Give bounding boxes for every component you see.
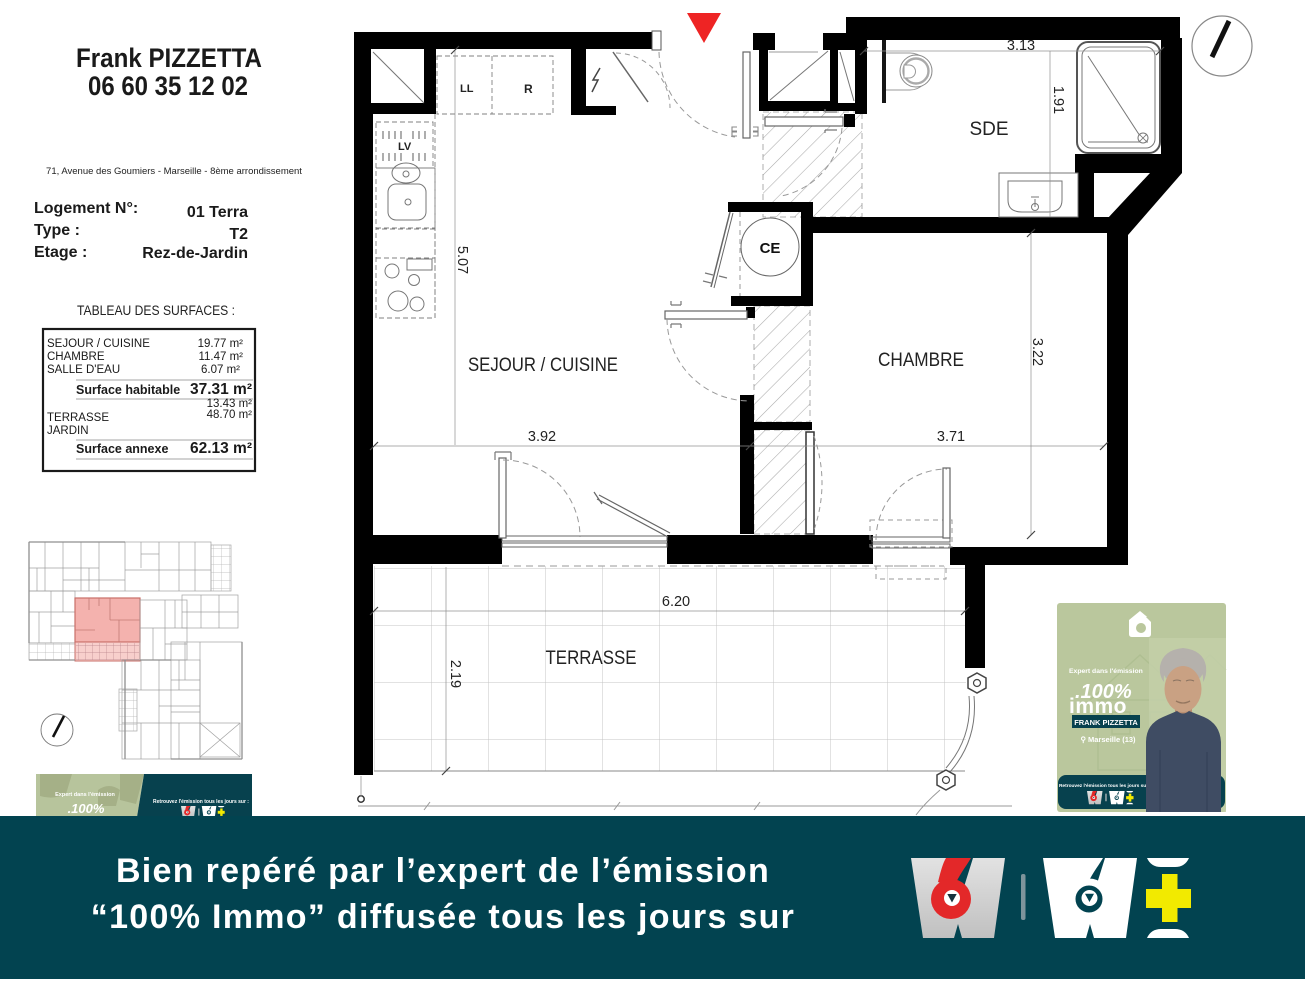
svg-text:1.91: 1.91 [1050,86,1066,114]
svg-text:Surface habitable: Surface habitable [76,383,180,397]
svg-text:11.47 m²: 11.47 m² [198,351,243,363]
svg-text:Type :: Type : [34,222,80,239]
svg-text:3.92: 3.92 [528,429,556,445]
svg-text:Retrouvez l'émission tous les: Retrouvez l'émission tous les jours sur … [153,799,249,805]
svg-text:Bien repéré par l’expert de l’: Bien repéré par l’expert de l’émission [116,852,770,890]
svg-text:.100%: .100% [68,801,105,816]
svg-text:LV: LV [398,141,412,153]
svg-text:19.77 m²: 19.77 m² [198,338,244,350]
svg-text:SEJOUR / CUISINE: SEJOUR / CUISINE [468,355,618,376]
svg-text:01 Terra: 01 Terra [187,204,248,221]
svg-text:FRANK PIZZETTA: FRANK PIZZETTA [1074,718,1138,727]
svg-text:06 60 35 12 02: 06 60 35 12 02 [88,71,248,101]
svg-text:Rez-de-Jardin: Rez-de-Jardin [142,245,248,262]
svg-text:SDE: SDE [969,119,1008,140]
svg-text:SEJOUR / CUISINE: SEJOUR / CUISINE [47,338,150,350]
svg-text:Retrouvez l'émission tous les: Retrouvez l'émission tous les jours sur … [1059,783,1151,789]
svg-text:6.20: 6.20 [662,594,690,610]
svg-text:3.22: 3.22 [1029,338,1045,366]
svg-text:Expert dans l'émission: Expert dans l'émission [1069,668,1143,675]
svg-text:CE: CE [760,240,781,257]
svg-text:2.19: 2.19 [447,660,463,688]
svg-text:48.70 m²: 48.70 m² [207,409,253,421]
svg-text:TABLEAU DES SURFACES :: TABLEAU DES SURFACES : [77,303,235,318]
svg-text:TERRASSE: TERRASSE [546,648,637,669]
svg-text:LL: LL [460,83,474,95]
svg-text:3.71: 3.71 [937,429,965,445]
svg-text:T2: T2 [229,226,248,243]
svg-text:CHAMBRE: CHAMBRE [47,351,105,363]
svg-text:R: R [524,82,533,96]
svg-text:Etage :: Etage : [34,244,87,261]
svg-text:Logement N°:: Logement N°: [34,200,138,217]
svg-text:immo: immo [1069,695,1127,718]
svg-text:71, Avenue des Goumiers - Mars: 71, Avenue des Goumiers - Marseille - 8è… [46,166,302,177]
svg-text:Surface annexe: Surface annexe [76,442,168,456]
svg-text:6.07 m²: 6.07 m² [201,364,240,376]
svg-text:3.13: 3.13 [1007,38,1035,54]
svg-text:Expert dans l'émission: Expert dans l'émission [55,792,115,798]
svg-text:62.13 m²: 62.13 m² [190,440,252,457]
svg-text:SALLE D'EAU: SALLE D'EAU [47,364,120,376]
svg-text:37.31 m²: 37.31 m² [190,381,252,398]
svg-text:CHAMBRE: CHAMBRE [878,350,964,371]
svg-text:JARDIN: JARDIN [47,425,89,437]
svg-text:⚲ Marseille (13): ⚲ Marseille (13) [1080,735,1136,744]
svg-text:5.07: 5.07 [454,246,470,274]
svg-text:“100% Immo” diffusée tous les: “100% Immo” diffusée tous les jours sur [91,898,795,936]
svg-text:Frank PIZZETTA: Frank PIZZETTA [76,43,262,73]
svg-text:TERRASSE: TERRASSE [47,412,109,424]
